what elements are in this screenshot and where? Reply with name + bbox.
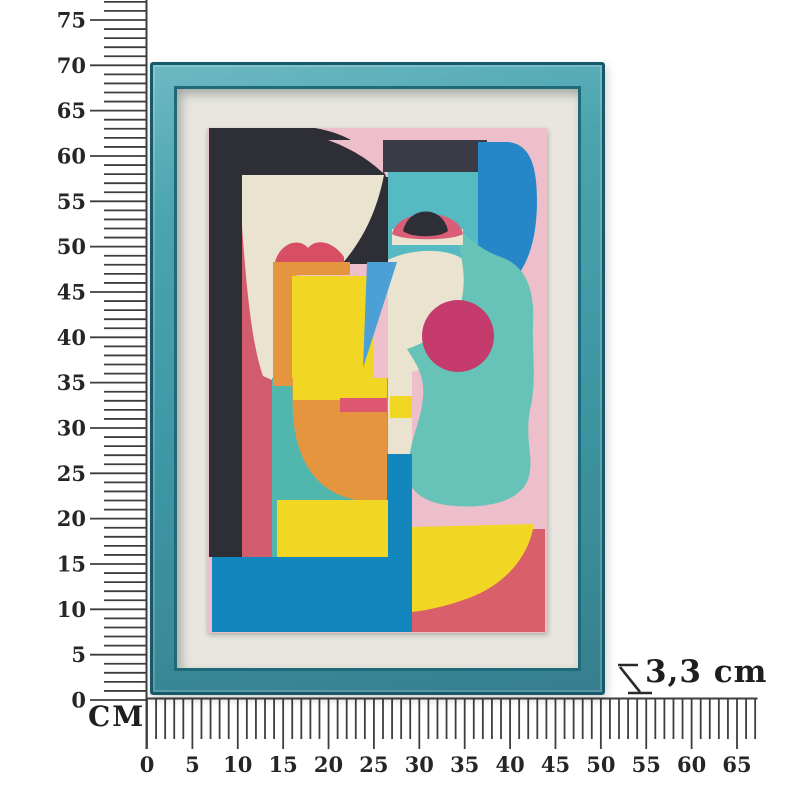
depth-value: 3,3 cm	[645, 654, 767, 690]
ruler-tick-label: 50	[57, 234, 86, 259]
yellow-bottom-rect	[277, 500, 388, 557]
ruler-tick-label: 15	[269, 752, 298, 777]
ruler-tick-label: 60	[57, 143, 86, 168]
ruler-tick-label: 30	[57, 415, 86, 440]
magenta-circle	[422, 300, 494, 372]
mouth-rose-strip	[340, 398, 387, 412]
ruler-tick-label: 20	[57, 506, 86, 531]
cm-unit-label: CM	[88, 700, 145, 733]
ruler-tick-label: 5	[185, 752, 200, 777]
ruler-tick-label: 10	[223, 752, 252, 777]
ruler-tick-label: 30	[405, 752, 434, 777]
ruler-tick-label: 20	[314, 752, 343, 777]
ruler-tick-label: 70	[57, 53, 86, 78]
picture-frame	[150, 62, 605, 695]
ruler-tick-label: 45	[57, 279, 86, 304]
ruler-tick-label: 60	[677, 752, 706, 777]
ruler-tick-label: 65	[722, 752, 751, 777]
ruler-tick-label: 45	[541, 752, 570, 777]
ruler-tick-label: 5	[71, 642, 86, 667]
ruler-tick-label: 75	[57, 7, 86, 32]
product-dimension-image: 0510152025303540455055606570750510152025…	[0, 0, 800, 800]
ruler-tick-label: 65	[57, 98, 86, 123]
ruler-tick-label: 0	[140, 752, 155, 777]
azure-column	[387, 454, 412, 557]
forehead-bar	[383, 140, 487, 172]
ruler-tick-label: 0	[71, 688, 86, 713]
ruler-tick-label: 40	[57, 325, 86, 350]
ruler-tick-label: 55	[632, 752, 661, 777]
ruler-tick-label: 40	[495, 752, 524, 777]
ruler-tick-label: 15	[57, 551, 86, 576]
ruler-tick-label: 25	[359, 752, 388, 777]
mat-board	[177, 89, 578, 668]
depth-annotation: 3,3 cm	[612, 648, 782, 704]
ruler-tick-label: 35	[57, 370, 86, 395]
ruler-tick-label: 10	[57, 597, 86, 622]
ruler-tick-label: 35	[450, 752, 479, 777]
blue-bottom-rect	[212, 557, 412, 632]
yellow-block	[292, 276, 373, 378]
mouth-yellow-strip	[293, 378, 387, 400]
abstract-face-artwork	[207, 128, 547, 633]
ruler-tick-label: 25	[57, 461, 86, 486]
ruler-tick-label: 50	[586, 752, 615, 777]
yellow-small-square	[390, 396, 412, 418]
artwork-canvas	[207, 128, 547, 633]
ruler-tick-label: 55	[57, 189, 86, 214]
